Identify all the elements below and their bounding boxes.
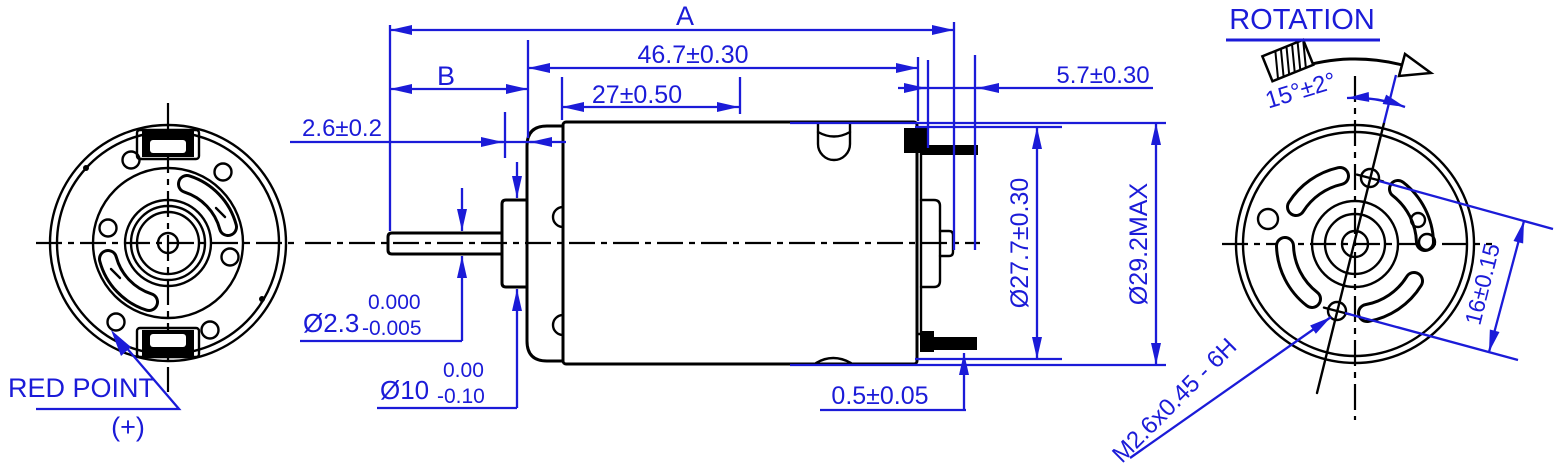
case-diameter-label: Ø27.7±0.30 [1006, 178, 1034, 308]
rear-terminal-bottom [137, 328, 199, 357]
extension-lines [390, 22, 1166, 365]
mounting-hole-axis [1317, 123, 1384, 393]
terminal-length-label: 5.7±0.30 [1056, 62, 1149, 89]
hole-axis-extension [1384, 75, 1396, 123]
motor-dimension-drawing: A 46.7±0.30 B 27±0.50 5.7±0.30 2.6±0.2 Ø… [0, 0, 1557, 476]
polarity-label: (+) [111, 412, 145, 442]
shaft-length-label: B [437, 61, 455, 91]
shaft-tol-upper-label: 0.000 [368, 291, 421, 314]
shaft-tol-lower-label: -0.005 [362, 317, 422, 340]
side-terminal-top [904, 128, 978, 155]
rear-terminal-top [137, 130, 199, 159]
rear-view [36, 103, 300, 409]
rotation-arrowhead [1399, 54, 1431, 76]
side-terminal-bottom [920, 331, 977, 352]
leader-thread-spec [1130, 317, 1331, 458]
bushing-tol-lower-label: -0.10 [437, 385, 485, 408]
bottom-vent-dome [816, 358, 851, 363]
rear-vent-holes [83, 152, 265, 339]
bushing-tol-upper-label: 0.00 [443, 359, 484, 382]
max-diameter-label: Ø29.2MAX [1125, 183, 1153, 306]
thread-spec-label: M2.6x0.45 - 6H [1107, 333, 1242, 468]
rotation-indicator [1262, 40, 1431, 82]
drawing-canvas: A 46.7±0.30 B 27±0.50 5.7±0.30 2.6±0.2 Ø… [0, 0, 1557, 476]
case-length-label: 46.7±0.30 [637, 41, 748, 69]
bushing-diameter-label: Ø10 [380, 375, 429, 405]
terminal-offset-label: 0.5±0.05 [831, 382, 928, 410]
bushing-protrusion-label: 2.6±0.2 [302, 115, 382, 142]
overall-length-label: A [676, 1, 694, 31]
shaft-diameter-label: Ø2.3 [303, 308, 359, 338]
red-point-label: RED POINT [8, 373, 155, 403]
stack-length-label: 27±0.50 [592, 81, 682, 109]
rotation-title: ROTATION [1229, 4, 1375, 36]
top-vent-recess [818, 123, 850, 160]
top-vent-recess-line [818, 132, 850, 137]
